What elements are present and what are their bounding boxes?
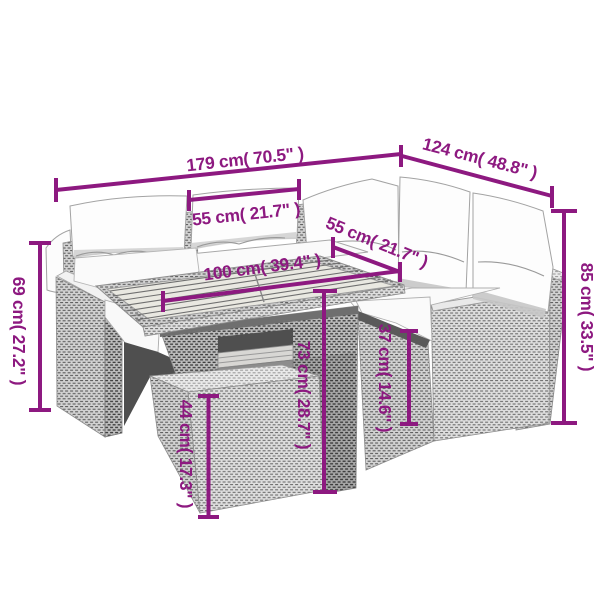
svg-text:69 cm( 27.2" ): 69 cm( 27.2" ) xyxy=(9,277,29,385)
svg-text:85 cm( 33.5" ): 85 cm( 33.5" ) xyxy=(577,263,597,371)
svg-text:73 cm( 28.7" ): 73 cm( 28.7" ) xyxy=(294,341,314,449)
svg-text:37 cm( 14.6" ): 37 cm( 14.6" ) xyxy=(375,324,395,432)
svg-text:44 cm( 17.3" ): 44 cm( 17.3" ) xyxy=(176,400,196,508)
